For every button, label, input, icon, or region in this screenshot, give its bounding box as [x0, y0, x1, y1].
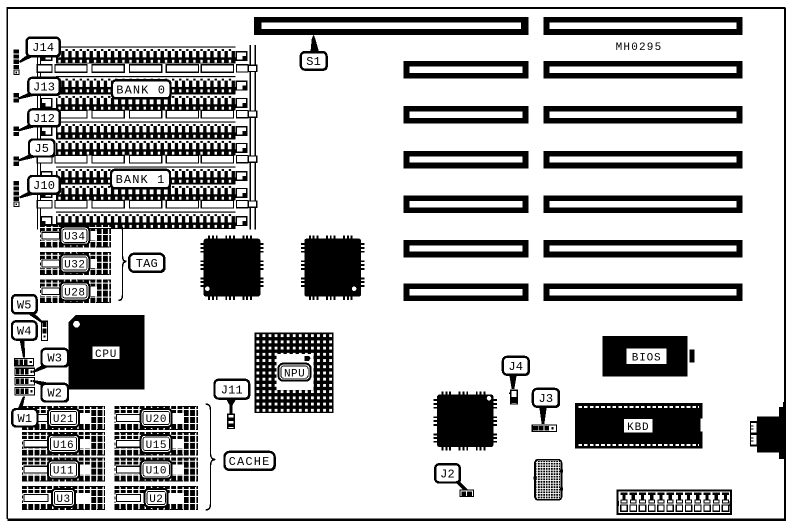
svg-text:J4: J4 — [508, 360, 523, 374]
svg-text:U10: U10 — [146, 466, 167, 478]
svg-text:CPU: CPU — [95, 349, 117, 361]
svg-text:J10: J10 — [33, 179, 55, 193]
svg-text:U28: U28 — [64, 287, 85, 299]
svg-text:U21: U21 — [53, 414, 74, 426]
svg-text:J2: J2 — [440, 467, 455, 481]
svg-text:U16: U16 — [53, 440, 74, 452]
svg-text:S1: S1 — [306, 55, 321, 69]
svg-text:J13: J13 — [33, 80, 55, 94]
svg-text:U15: U15 — [146, 440, 167, 452]
svg-text:J11: J11 — [221, 383, 243, 397]
svg-text:BANK 1: BANK 1 — [116, 173, 166, 187]
svg-text:J5: J5 — [34, 142, 49, 156]
svg-text:W3: W3 — [47, 352, 62, 366]
svg-text:TAG: TAG — [136, 257, 158, 271]
svg-text:NPU: NPU — [284, 368, 305, 380]
svg-text:U32: U32 — [64, 260, 85, 272]
svg-text:BIOS: BIOS — [632, 353, 662, 365]
svg-text:MH0295: MH0295 — [616, 42, 663, 54]
svg-text:W4: W4 — [17, 325, 32, 339]
svg-text:J14: J14 — [32, 41, 54, 55]
svg-text:BANK 0: BANK 0 — [116, 83, 166, 97]
svg-text:U3: U3 — [56, 494, 70, 506]
svg-text:W5: W5 — [17, 298, 32, 312]
svg-text:U20: U20 — [146, 414, 167, 426]
svg-text:U2: U2 — [149, 494, 163, 506]
svg-text:U11: U11 — [53, 466, 74, 478]
svg-text:CACHE: CACHE — [229, 455, 271, 469]
svg-text:W1: W1 — [17, 412, 32, 426]
svg-text:J3: J3 — [538, 392, 553, 406]
svg-text:KBD: KBD — [627, 422, 649, 434]
svg-text:W2: W2 — [47, 387, 62, 401]
svg-text:J12: J12 — [33, 112, 55, 126]
svg-text:U34: U34 — [64, 232, 85, 244]
